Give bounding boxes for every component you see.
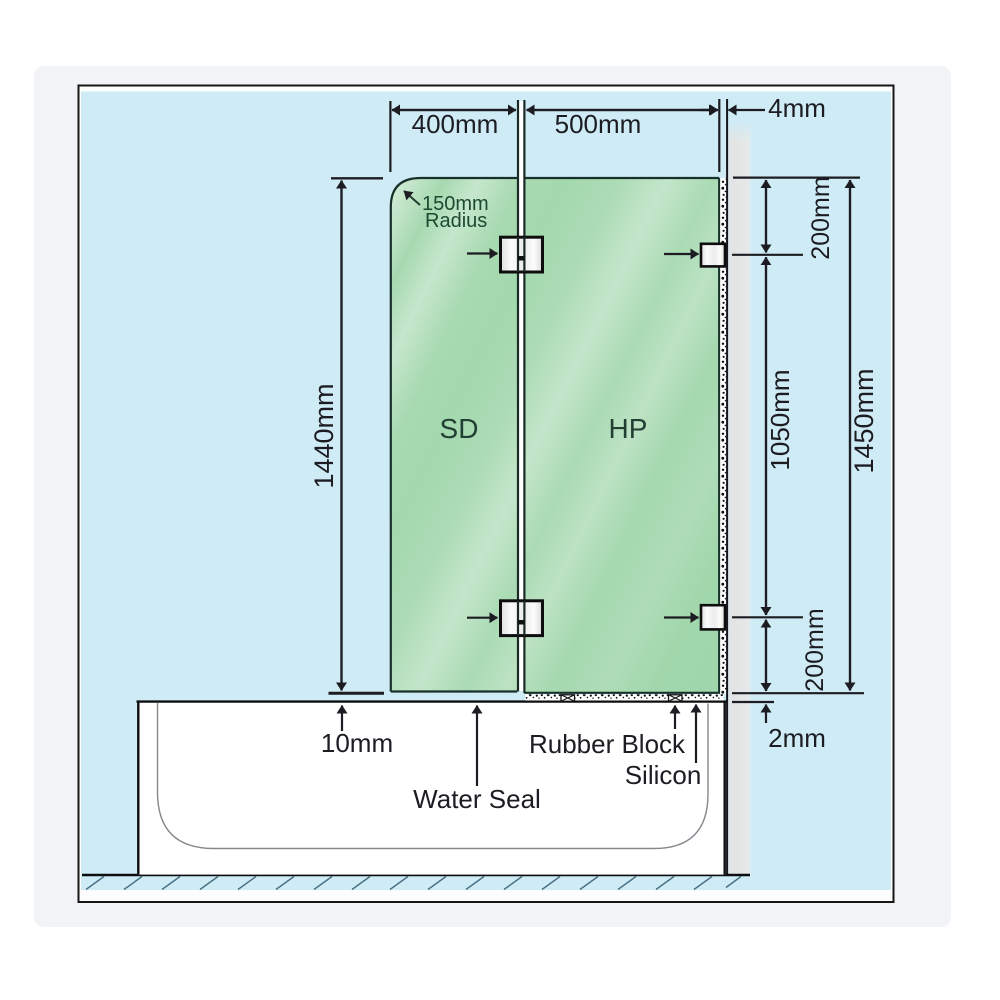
svg-text:SD: SD <box>440 413 479 444</box>
svg-text:400mm: 400mm <box>412 109 499 139</box>
svg-text:Rubber Block: Rubber Block <box>529 729 686 759</box>
svg-text:1450mm: 1450mm <box>849 368 879 473</box>
svg-text:2mm: 2mm <box>768 723 826 753</box>
svg-text:10mm: 10mm <box>321 728 393 758</box>
svg-text:4mm: 4mm <box>768 93 826 123</box>
svg-text:Silicon: Silicon <box>625 760 702 790</box>
svg-text:1050mm: 1050mm <box>765 369 795 470</box>
svg-text:1440mm: 1440mm <box>309 383 339 488</box>
svg-text:200mm: 200mm <box>801 608 829 691</box>
svg-text:HP: HP <box>609 413 648 444</box>
svg-text:Water Seal: Water Seal <box>413 784 541 814</box>
svg-text:200mm: 200mm <box>807 176 835 259</box>
svg-text:500mm: 500mm <box>555 109 642 139</box>
svg-text:Radius: Radius <box>425 210 487 232</box>
